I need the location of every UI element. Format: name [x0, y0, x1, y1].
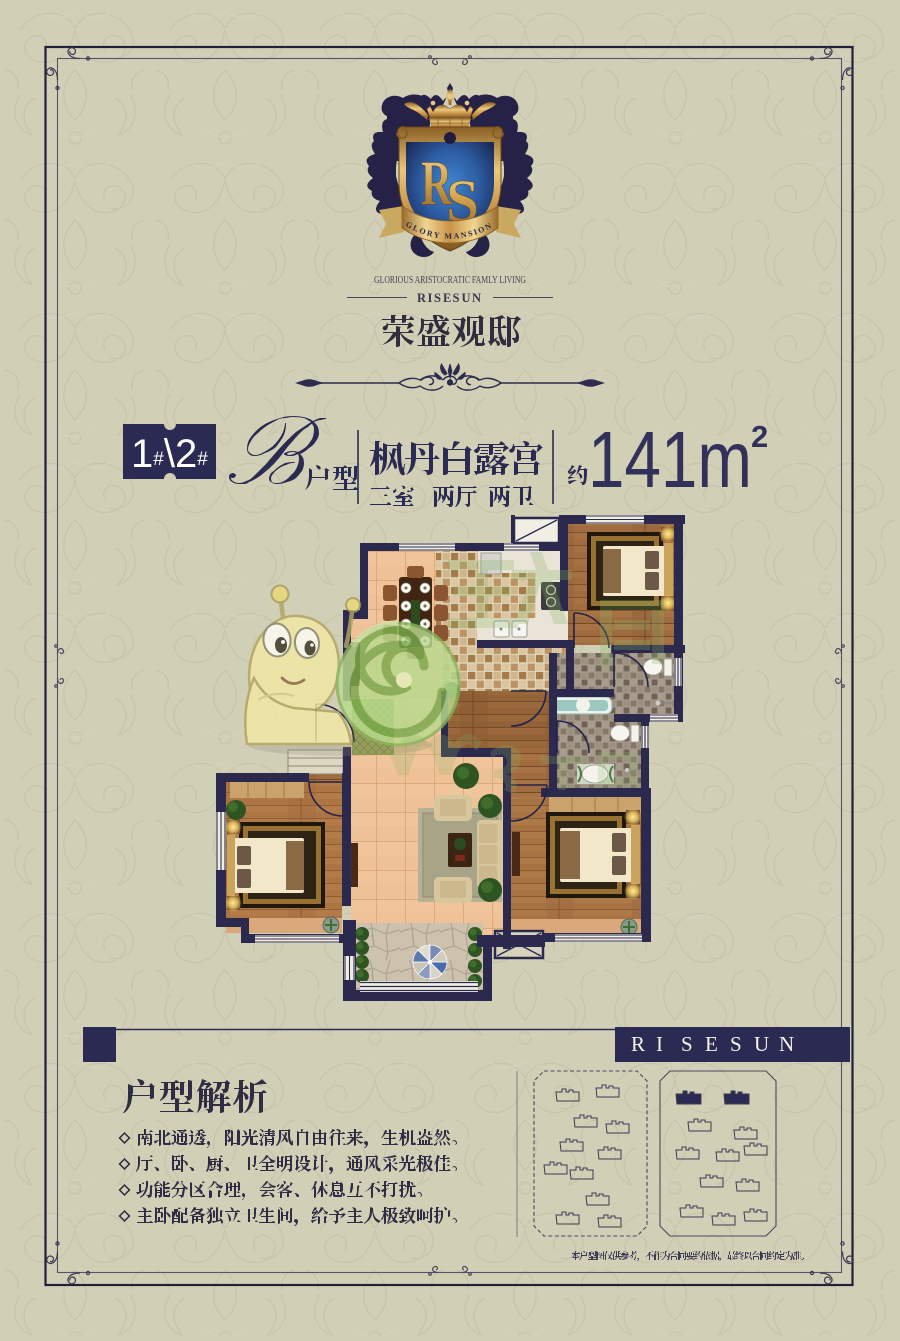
svg-text:1#\2#: 1#\2#	[131, 432, 208, 476]
svg-text:141m: 141m	[588, 415, 752, 504]
svg-text:RISESUN: RISESUN	[417, 291, 481, 305]
svg-text:2: 2	[751, 419, 768, 454]
svg-text:GLORIOUS ARISTOCRATIC FAMLY LI: GLORIOUS ARISTOCRATIC FAMLY LIVING	[374, 275, 526, 286]
